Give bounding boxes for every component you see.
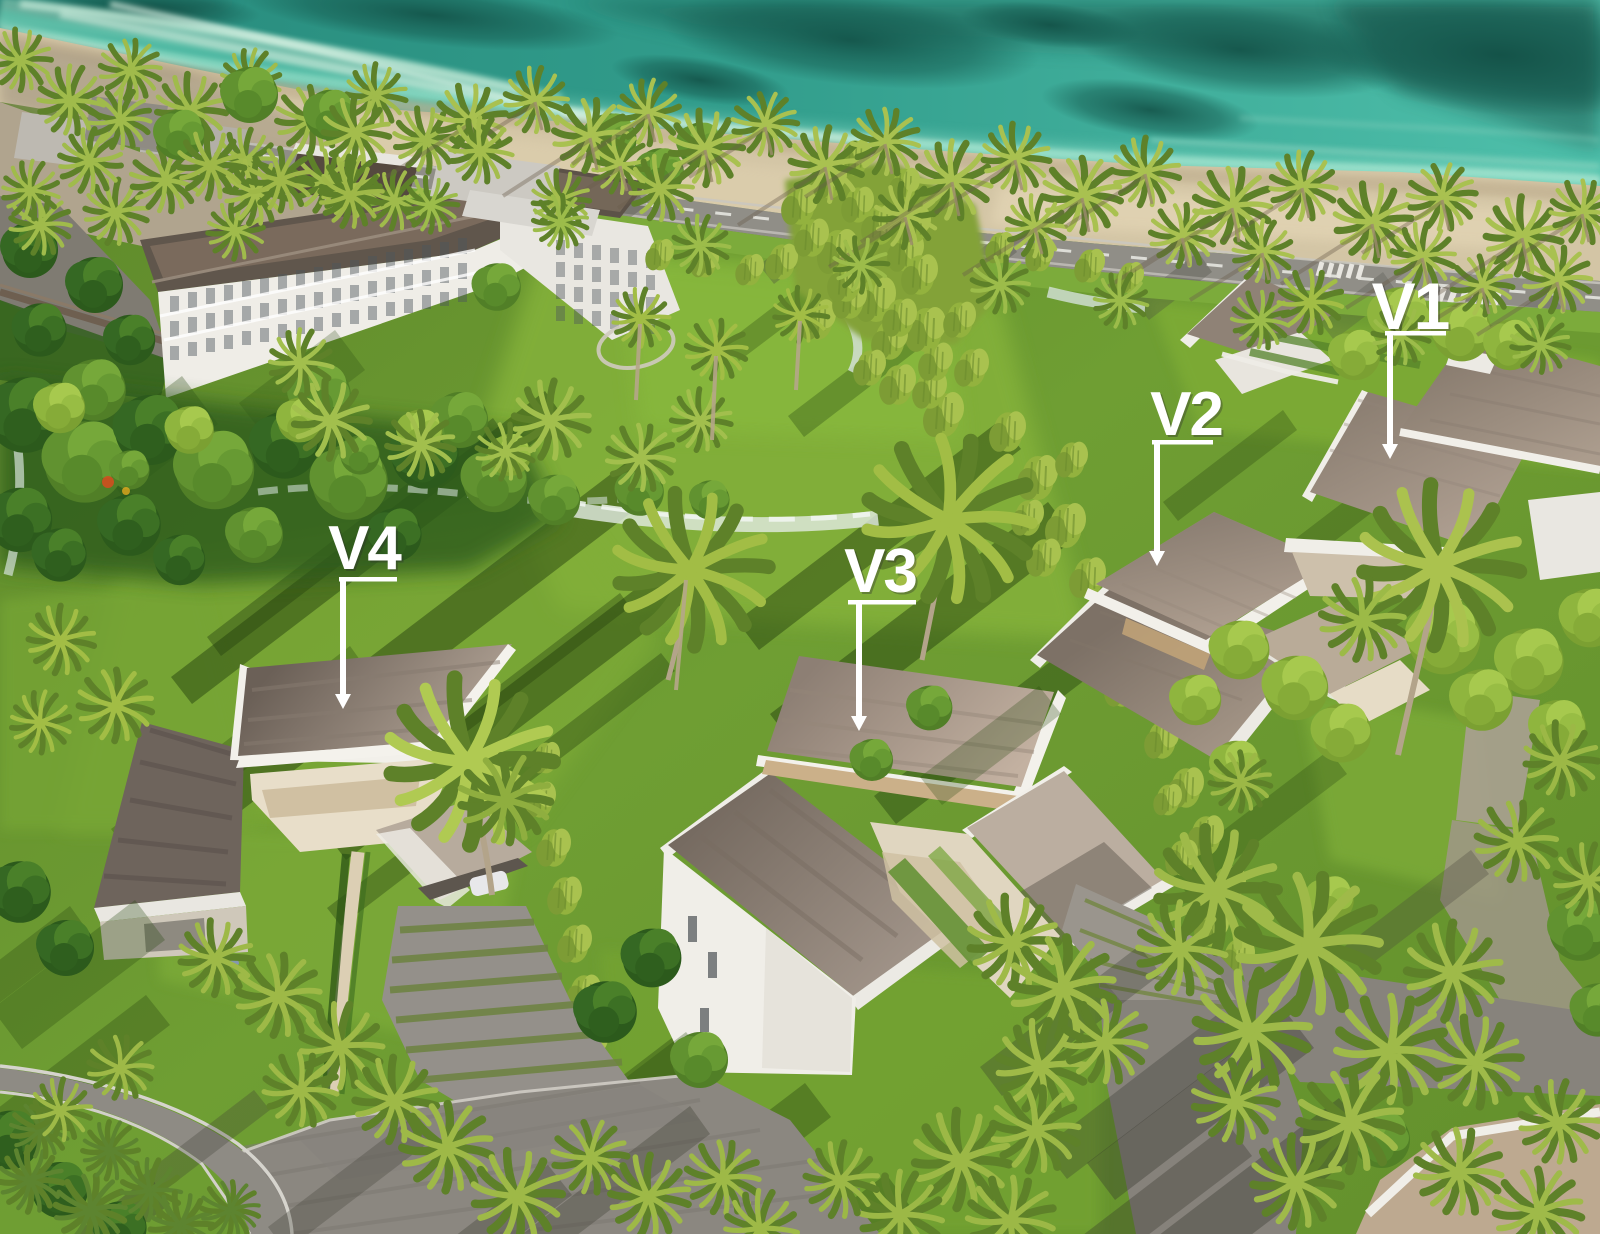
svg-text:V2: V2 — [1150, 380, 1222, 449]
svg-text:V3: V3 — [844, 537, 916, 606]
svg-text:V4: V4 — [328, 514, 402, 583]
